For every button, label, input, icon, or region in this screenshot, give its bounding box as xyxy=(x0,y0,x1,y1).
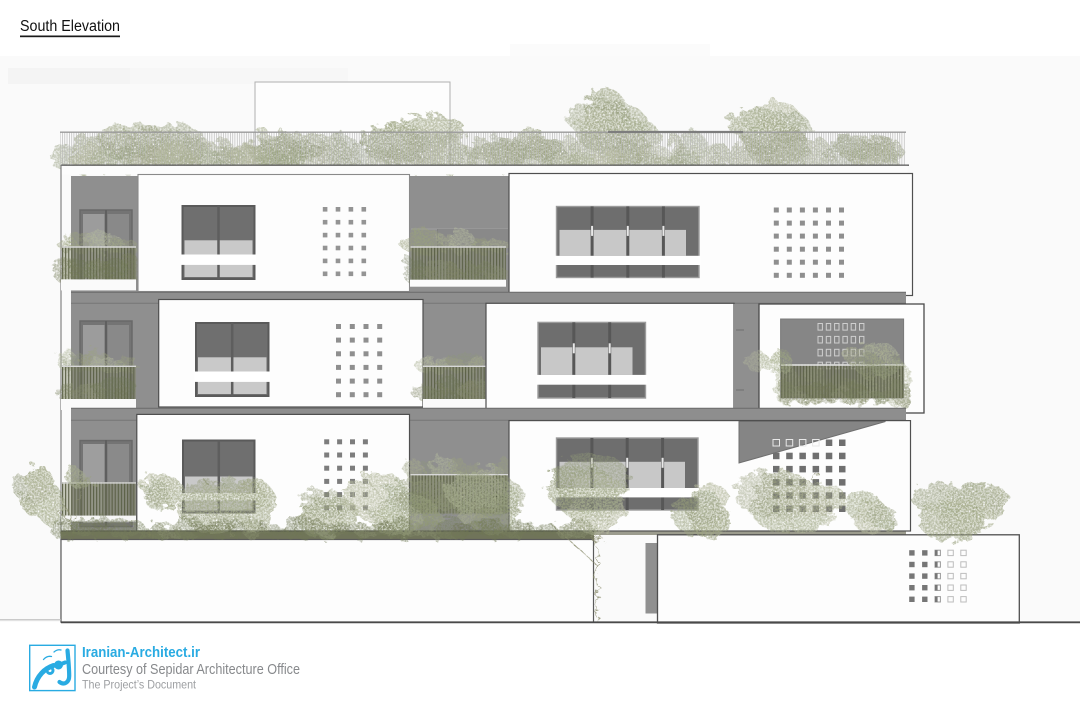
svg-text:The Project’s Document: The Project’s Document xyxy=(82,678,197,692)
svg-text:Iranian-Architect.ir: Iranian-Architect.ir xyxy=(82,644,200,661)
svg-text:South Elevation: South Elevation xyxy=(20,18,120,35)
svg-text:Courtesy of Sepidar Architectu: Courtesy of Sepidar Architecture Office xyxy=(82,662,300,678)
